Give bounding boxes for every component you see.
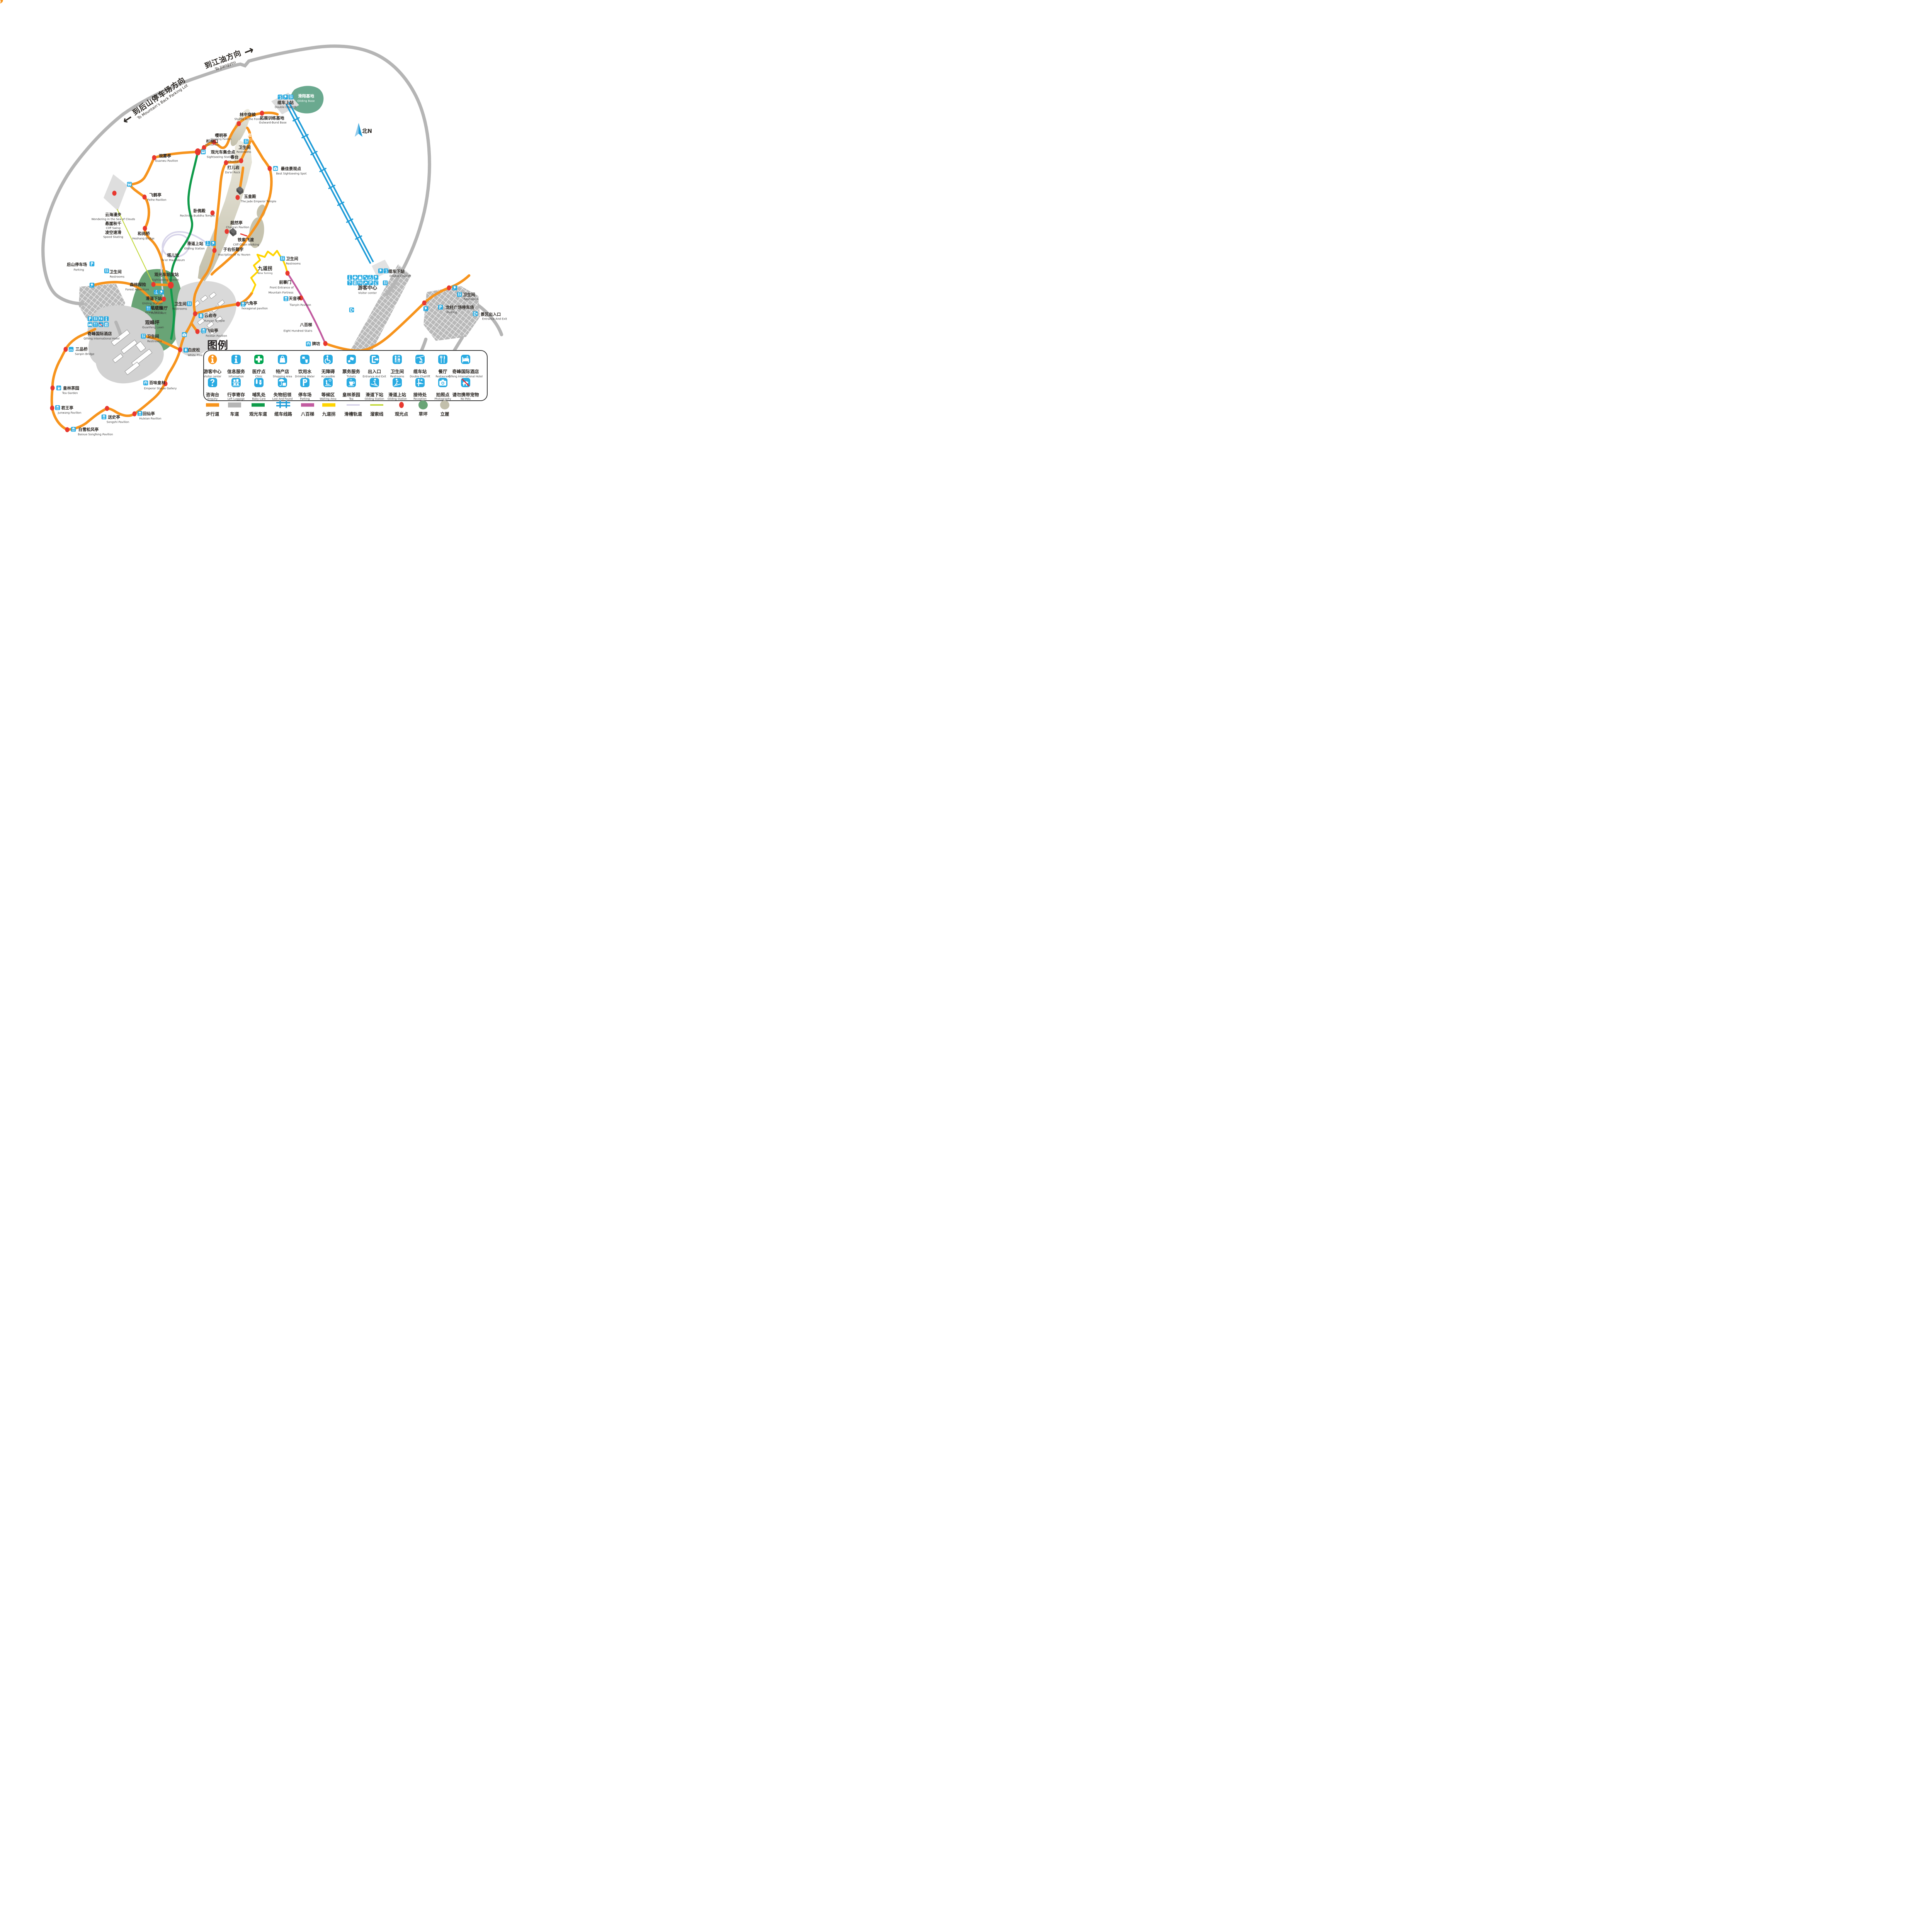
outward-bound-base-label-1: Outward-Bund Base [259, 121, 286, 124]
legend-row1-4-zh: 饮用水 [298, 369, 312, 374]
gliding-station-lower-dot [162, 297, 166, 302]
eight-hundred-stairs-label-0: 八百梯 [300, 323, 312, 327]
sightseeing-station-mid-label-0: 观光车集合点 [211, 150, 235, 155]
forest-adventure-label-1: Forest Adventure [125, 288, 149, 291]
luggage-icon [352, 281, 357, 286]
huixian-pavilion-dot [133, 412, 137, 417]
guanfeng-lawn-label-0: 观峰坪 [145, 320, 160, 325]
gliding-station-upper-kite-tile [211, 240, 216, 248]
bench-icon [323, 377, 333, 389]
info-icon [104, 316, 109, 321]
P-icon [300, 377, 310, 389]
legend-row2-8-zh: 滑道上站 [388, 393, 406, 397]
chairlift-icon [384, 269, 389, 274]
sea-of-clouds-label-4: 凌空速滑 [105, 231, 121, 235]
qifeng-hotel-bed-tile [88, 321, 93, 329]
white-pine-label-1: White Pine [188, 354, 202, 356]
shuttle-forest-dot [260, 111, 264, 116]
P-icon [88, 316, 93, 321]
legend-row1-8-zh: 卫生间 [391, 369, 404, 374]
eight-hundred-stairs-label-1: Eight Hundred Stairs [284, 329, 312, 332]
qifeng-hotel-forkknife-tile [93, 321, 98, 329]
legend-row1-1-zh: 信息服务 [227, 369, 245, 374]
legend-row1-8-icon [393, 354, 402, 367]
chairlift-top-station-kite-tile [283, 94, 288, 101]
kite-icon [378, 269, 383, 274]
pavilion-icon [201, 328, 206, 333]
feihe-pavilion-label-0: 飞鹤亭 [149, 193, 162, 197]
junwang-pavilion-dot [50, 406, 54, 411]
restroom-icon [457, 292, 462, 297]
legend-row2-11-icon [461, 377, 471, 390]
yunyan-temple-label-0: 云岩寺 [204, 314, 217, 318]
bed-icon [88, 322, 93, 327]
legend-row2-6-icon [347, 377, 356, 390]
arch-icon [143, 381, 148, 386]
restroom-north-restroom-tile [244, 138, 249, 146]
gliding-station-lower-label-0: 滑道下站 [146, 297, 162, 301]
forest-adventure-label-0: 森林探险 [130, 283, 146, 287]
gliding-station-upper-label-0: 滑道上站 [187, 242, 203, 246]
arch-icon [306, 342, 311, 347]
sightseeing-station-start-dot [168, 282, 174, 289]
memorial-archway-dot [323, 341, 328, 346]
tea-icon [56, 386, 61, 391]
legend-row2-9-zh: 接待处 [413, 393, 427, 397]
legend-line-0-zh: 步行道 [206, 412, 219, 417]
legend-row1-1-icon [231, 354, 241, 367]
legend-row2-11-zh: 请勿携带宠物 [452, 393, 479, 397]
spot-east-1-dot [447, 286, 451, 291]
legend-row2-6-en: Tea [349, 398, 353, 401]
heshang-bridge-dot [143, 226, 147, 231]
legend-line-5-swatch [322, 403, 335, 407]
plus-icon [254, 354, 264, 366]
tea-garden-label-1: Tea Garden [62, 391, 78, 394]
restroom-icon [280, 256, 285, 261]
legend-row1-11-icon [461, 354, 471, 367]
yingming-pavilion-label-0: 嘤明亭 [215, 134, 227, 138]
taer-mausoleum-label-0: 塔儿坟 [167, 253, 179, 258]
legend-line-10-zh: 立崖 [440, 412, 449, 417]
gliding-base-label-0: 滑翔基地 [298, 94, 314, 99]
gliding-station-upper-ski2-tile [206, 240, 211, 248]
north-compass-icon [355, 123, 362, 137]
pavilion-icon [284, 296, 289, 301]
legend-line-7-swatch [370, 404, 383, 406]
luggage-icon [104, 322, 109, 327]
shanlin-kou-label-1: Shanlin Kou [205, 144, 219, 146]
taer-mausoleum-label-1: Ta’er Mausoleum [162, 259, 185, 261]
pavilion-icon [102, 415, 107, 420]
restroom-icon [187, 301, 192, 306]
chuntai-dot [239, 158, 243, 163]
chaoran-pavilion-label-0: 超然亭 [230, 221, 243, 225]
restroom-icon [244, 139, 249, 144]
visitor-center-label-0: 游客中心 [358, 286, 377, 291]
restroom-hotel-label-0: 卫生间 [147, 335, 159, 339]
emperor-statue-gallery-arch-tile [143, 380, 148, 387]
scenic-entrance-label-1: Entrance And Exit [482, 317, 507, 320]
sea-of-clouds-label-5: Speed Skating [103, 235, 123, 238]
heshang-bridge-label-1: Heshang Bridge [132, 237, 154, 240]
forest-adventure-dot [151, 282, 156, 287]
baixue-songfeng-pavilion-label-0: 白雪松风亭 [78, 428, 99, 432]
tea-garden-dot [51, 386, 55, 391]
legend-line-6-swatch [347, 404, 360, 406]
ski-icon [370, 377, 379, 389]
legend-row2-10-en: Photography [434, 398, 451, 401]
ski-icon [154, 290, 159, 295]
legend-row1-5-icon [323, 354, 333, 367]
emperor-statue-gallery-label-0: 百味皇林 [149, 381, 165, 385]
guanwu-pavilion-label-0: 观雾亭 [159, 154, 171, 158]
north-label: 北N [362, 129, 372, 134]
legend-row2-11-en: No Pets [461, 398, 471, 401]
reclining-buddha-temple-label-1: Reclining Buddha Temple [180, 214, 215, 217]
eight-hundred-stairs-line [287, 273, 325, 344]
legend-line-8-swatch [399, 402, 404, 408]
legend-line-0-swatch [206, 403, 219, 407]
legend-line-10-swatch [440, 401, 449, 410]
nopets-icon [461, 377, 471, 389]
heshang-bridge-label-0: 和尚桥 [138, 232, 150, 236]
legend-row1-4-icon [300, 354, 310, 367]
songshi-pavilion-label-0: 送史亭 [108, 415, 120, 420]
shuttle-forest-label-0: 林中穿梭 [240, 113, 256, 117]
restroom-icon [141, 334, 146, 339]
emperor-statue-gallery-label-1: Emperor Statue Gallery [144, 387, 177, 389]
chairlift-bottom-station-kite-tile [378, 268, 383, 275]
legend-row2-8-en: Gliding Station [388, 398, 407, 401]
forkknife-icon [146, 306, 151, 311]
scenic-area-map: 到江油方向To Jiangyou→←到后山停车场方向To Mountain’s … [0, 0, 543, 436]
wheelchair-icon [323, 354, 333, 366]
exit-visitor-center-exit-tile [349, 307, 354, 314]
kite-back-parking-kite-tile [90, 282, 95, 289]
front-entrance-fortress-label-0: 前寨门 [279, 281, 291, 285]
hexagonal-pavilion-label-1: hexagonal pavilion [241, 307, 268, 310]
visitor-center-services-luggage-tile [352, 280, 357, 287]
legend-row2-6-zh: 皇林茶园 [342, 393, 360, 397]
feihe-pavilion-label-1: Feihe Pavilion [147, 198, 166, 201]
huixian-pavilion-label-0: 回仙亭 [143, 412, 155, 416]
legend-row2-0-en: Enquiry [207, 398, 218, 401]
kite-icon [159, 290, 164, 295]
legend-row2-3-icon [278, 377, 287, 390]
tianyin-pavilion-label-0: 天音亭 [289, 297, 301, 301]
baixue-songfeng-pavilion-pavilion-tile [71, 426, 76, 434]
sea-of-clouds-dot [112, 191, 117, 196]
info-icon [231, 354, 241, 366]
qifeng-hotel-label-0: 奇峰国际酒店 [88, 332, 112, 336]
chaoran-pavilion-dot [225, 229, 229, 234]
legend-row2-9-icon [415, 377, 425, 390]
forkknife-icon [438, 354, 448, 366]
water-icon [300, 354, 310, 366]
front-entrance-fortress-label-1: Front Entrance of [270, 286, 294, 289]
shanlin-kou-label-0: 杉林口 [206, 139, 218, 144]
restroom-icon [393, 354, 402, 366]
chairlift-top-station-label-1: Double Chairlift [275, 105, 296, 108]
sea-of-clouds-label-3: Cliff Swing [106, 226, 121, 229]
gliding-station-upper-label-1: Gliding Station [184, 247, 204, 250]
memorial-archway-label-0: 牌坊 [312, 342, 320, 346]
chairlift-bottom-station-chairlift-tile [384, 268, 389, 275]
villa-restaurant-label-1: Restaurant [151, 311, 166, 314]
restroom-back-parking-restroom-tile [104, 268, 109, 275]
sanpin-bridge-dot [64, 347, 68, 352]
legend-row2-7-zh: 滑道下站 [366, 393, 383, 397]
legend-row2-0-icon [208, 377, 218, 390]
legend-row1-0-zh: 游客中心 [204, 369, 221, 374]
pavilion-icon [138, 411, 143, 416]
chairlift-bottom-station-label-0: 缆车下站 [388, 270, 405, 274]
legend-line-3-swatch [276, 400, 291, 410]
legend-row2-9-en: Reception [413, 398, 427, 401]
white-pine-dot [178, 347, 182, 352]
guanfeng-lawn-label-1: Guanfeng Lawn [142, 326, 164, 328]
legend-row2-2-en: Baby Care [252, 398, 265, 401]
legend-line-1-zh: 车道 [230, 412, 239, 417]
longzhu-square-parking-label-1: Parking [447, 311, 457, 313]
legend-row2-10-icon [438, 377, 448, 390]
restroom-icon [93, 316, 98, 321]
legend-line-4-swatch [301, 403, 314, 407]
legend-row1-10-icon [438, 354, 448, 367]
exit-icon [370, 354, 379, 366]
hexagonal-pavilion-label-0: 六角亭 [245, 301, 257, 306]
scenic-entrance-label-0: 景区出入口 [481, 313, 501, 317]
sanpin-bridge-label-1: Sanpin Bridge [75, 352, 94, 355]
legend-line-1-swatch [228, 403, 241, 408]
legend-line-2-swatch [252, 403, 265, 407]
baby-icon [99, 316, 104, 321]
legend-row2-4-en: Parking [300, 398, 310, 401]
yunyan-temple-label-1: Yunyan Temple [204, 319, 225, 322]
sightseeing-station-mid-label-1: Sightseeing Station [207, 155, 234, 158]
restroom-icon [383, 281, 388, 286]
legend-row2-3-zh: 失物招领 [274, 393, 291, 397]
cable-car-line [286, 102, 373, 264]
back-parking-label-0: 后山停车场 [67, 263, 87, 267]
daer-rock-label-1: Da’er Rock [225, 171, 240, 173]
chaoran-building [230, 228, 236, 236]
restroom-north-label-1: Restrooms [236, 150, 251, 153]
legend-line-5-zh: 九道拐 [322, 412, 336, 417]
best-sightseeing-spot-label-1: Best Sightseeing Spot [276, 172, 306, 175]
legend-row2-5-zh: 等候区 [321, 393, 335, 397]
tianyin-pavilion-label-1: Tianyin Pavilion [289, 303, 311, 306]
guanwu-pavilion-label-1: Guanwu Pavilion [155, 159, 178, 162]
villa-restaurant-label-0: 山庄餐厅 [151, 306, 168, 311]
front-entrance-fortress-label-2: Mountain Fortress [269, 291, 294, 294]
legend-line-7-zh: 溜索线 [370, 412, 384, 417]
legend-row2-1-icon [231, 377, 241, 390]
ski2-icon [393, 377, 402, 389]
baixue-songfeng-pavilion-label-1: Baixue Songfeng Pavilion [78, 433, 113, 435]
kite-icon [452, 286, 457, 291]
chaoran-pavilion-label-1: Chaoran Pavilion [226, 226, 249, 228]
bridge-icon [69, 347, 74, 352]
qifeng-hotel-luggage-tile [104, 321, 109, 329]
jade-emperor-temple-label-0: 玉皇殿 [244, 195, 256, 199]
inscription-yu-youren-label-0: 于右任题字 [223, 248, 244, 252]
legend-line-6-zh: 滑槽轨道 [344, 412, 362, 417]
legend-row1-9-icon [415, 354, 425, 367]
restroom-east-label-0: 卫生间 [463, 293, 475, 297]
legend-row2-7-icon [370, 377, 379, 390]
legend-row2-10-zh: 拍照点 [436, 393, 450, 397]
sanpin-bridge-label-0: 三品桥 [75, 347, 88, 352]
legend-row2-8-icon [393, 377, 402, 390]
chairlift-top-station-chairlift-tile [278, 94, 283, 101]
feixian-pavilion-label-0: 飞仙亭 [206, 329, 218, 333]
visitor-center-label-1: Visitor center [358, 291, 377, 294]
legend-line-2-zh: 观光车道 [249, 412, 267, 417]
legend-row1-2-zh: 医疗点 [252, 369, 266, 374]
question-icon [208, 377, 218, 389]
legend-row1-7-zh: 出入口 [368, 369, 381, 374]
legend-row1-5-zh: 无障碍 [321, 369, 335, 374]
kite-icon [90, 283, 95, 288]
chairlift-icon [278, 95, 283, 100]
legend-row2-1-zh: 行李寄存 [227, 393, 245, 397]
luggage-icon [231, 377, 241, 389]
kite-icon [423, 306, 429, 311]
restroom-nine-turning-label-0: 卫生间 [286, 257, 298, 261]
sightseeing-station-mid-bus-tile [201, 149, 206, 156]
junwang-pavilion-label-1: Junwang Pavilion [58, 411, 82, 414]
cliff-chain-walking-label-1: Cliff Chain Walking [233, 243, 259, 246]
sea-of-clouds-bus-tile [127, 181, 132, 189]
legend-row2-4-icon [300, 377, 310, 390]
legend-row1-6-zh: 票务服务 [342, 369, 360, 374]
chairlift-top-station-restroom-tile [289, 94, 294, 101]
tea-icon [347, 377, 356, 389]
chairlift-bottom-station-label-1: Double Chairlift [389, 274, 411, 277]
bag-icon [278, 354, 287, 366]
villa-restaurant-forkknife-tile [146, 305, 151, 313]
chuntai-label-0: 春台 [231, 155, 239, 160]
nopets-icon [99, 322, 104, 327]
ticket-icon [347, 354, 356, 366]
camera-icon [182, 332, 187, 337]
jade-emperor-temple-label-1: The Jade Emperor Temple [241, 200, 276, 202]
legend-row1-6-icon [347, 354, 356, 367]
scenic-entrance-exit-tile [473, 311, 478, 318]
back-parking-label-1: Parking [74, 268, 84, 271]
restroom-hotel-restroom-tile [141, 333, 146, 340]
legend-line-4-zh: 八百梯 [301, 412, 315, 417]
chairlift-top-station-label-0: 缆车上站 [277, 101, 294, 105]
shuttle-forest-label-1: Shuttle in the Forest [235, 117, 263, 120]
question-icon [347, 281, 352, 286]
reclining-buddha-temple-label-0: 卧佛殿 [193, 209, 206, 213]
legend-row2-0-zh: 咨询台 [206, 393, 219, 397]
songshi-pavilion-pavilion-tile [102, 414, 107, 421]
daer-rock-label-0: 打儿岩 [227, 166, 240, 170]
gliding-station-lower-kite-tile [159, 289, 164, 296]
sightseeing-station-mid-dot [195, 148, 201, 155]
back-parking-P-tile [90, 261, 95, 268]
camera-icon [438, 377, 448, 389]
bed-icon [461, 354, 471, 366]
sanpin-bridge-bridge-tile [69, 346, 74, 354]
legend-line-9-zh: 草坪 [419, 412, 428, 417]
restroom-temple-label-1: Restrooms [172, 307, 187, 310]
qifeng-hotel-label-1: Qifeng International Hotel [83, 337, 119, 340]
legend-row1-11-zh: 奇峰国际酒店 [452, 369, 479, 374]
restroom-back-parking-label-0: 卫生间 [109, 270, 122, 274]
sightseeing-station-start-label-0: 观光车始发站 [155, 273, 179, 277]
yunyan-temple-temple-tile [199, 313, 204, 320]
rock-climbing-dot [237, 121, 241, 126]
junwang-pavilion-label-0: 君王亭 [61, 406, 73, 410]
visitor-center-services-question-tile [347, 280, 352, 287]
restroom-east-restroom-tile [457, 291, 462, 299]
restroom-icon [289, 95, 294, 100]
lost-icon [278, 377, 287, 389]
inscription-yu-youren-label-1: Inscription of Yu Youren [218, 253, 250, 256]
nine-turning-label-1: Nine Turning [258, 272, 273, 275]
info-icon [0, 0, 3, 4]
restroom-nine-turning-restroom-tile [280, 255, 285, 263]
legend-line-9-swatch [418, 401, 428, 410]
chairlift-icon [415, 354, 425, 366]
legend-row1-3-zh: 特产店 [276, 369, 289, 374]
legend-row2-2-icon [254, 377, 264, 390]
restroom-back-parking-label-1: Restrooms [110, 275, 124, 278]
cliff-chain-walking-line [240, 234, 247, 236]
best-sightseeing-spot-label-0: 最佳景观点 [281, 167, 301, 171]
kite-icon [283, 95, 288, 100]
huixian-pavilion-label-1: Huixian Pavilion [139, 417, 161, 420]
feixian-pavilion-dot [196, 329, 200, 334]
restroom-icon [104, 269, 109, 274]
P-icon [90, 262, 95, 267]
front-entrance-fortress-dot [286, 271, 290, 276]
feihe-pavilion-dot [143, 195, 147, 200]
sea-of-clouds-label-2: 悬崖秋千 [105, 222, 121, 226]
memorial-archway-arch-tile [306, 341, 311, 348]
sea-of-clouds-label-1: Wondering in the Sea of Clouds [91, 218, 135, 220]
ski2-icon [206, 241, 211, 246]
nine-turning-label-0: 九道拐 [258, 266, 272, 271]
spot-east-2-kite-tile [423, 306, 429, 313]
tea-garden-label-0: 皇林茶园 [63, 386, 79, 391]
restroom-north-label-0: 卫生间 [238, 146, 251, 150]
gliding-base-label-1: Gliding Base [297, 99, 315, 102]
restroom-visitor-parking-restroom-tile [383, 280, 388, 287]
chuntai-label-1: Chuntai [228, 160, 239, 163]
forkknife-icon [93, 322, 98, 327]
pavilion-icon [55, 405, 60, 410]
baby-icon [254, 377, 264, 389]
gliding-station-lower-label-1: Gliding Station [142, 302, 162, 304]
sea-of-clouds-label-0: 云海漫步 [105, 213, 121, 217]
gliding-station-upper-dot [213, 248, 217, 253]
legend-row2-1-en: Left Luggage [228, 398, 245, 401]
yunyan-temple-dot [193, 311, 197, 316]
P-icon [438, 305, 443, 310]
reception-icon [415, 377, 425, 389]
white-pine-label-0: 白皮松 [188, 348, 200, 352]
exit-icon [473, 311, 478, 316]
cliff-chain-walking-label-0: 铁索飞渡 [238, 238, 254, 242]
restroom-nine-turning-label-1: Restrooms [286, 262, 301, 265]
jade-emperor-temple-dot [236, 195, 240, 200]
